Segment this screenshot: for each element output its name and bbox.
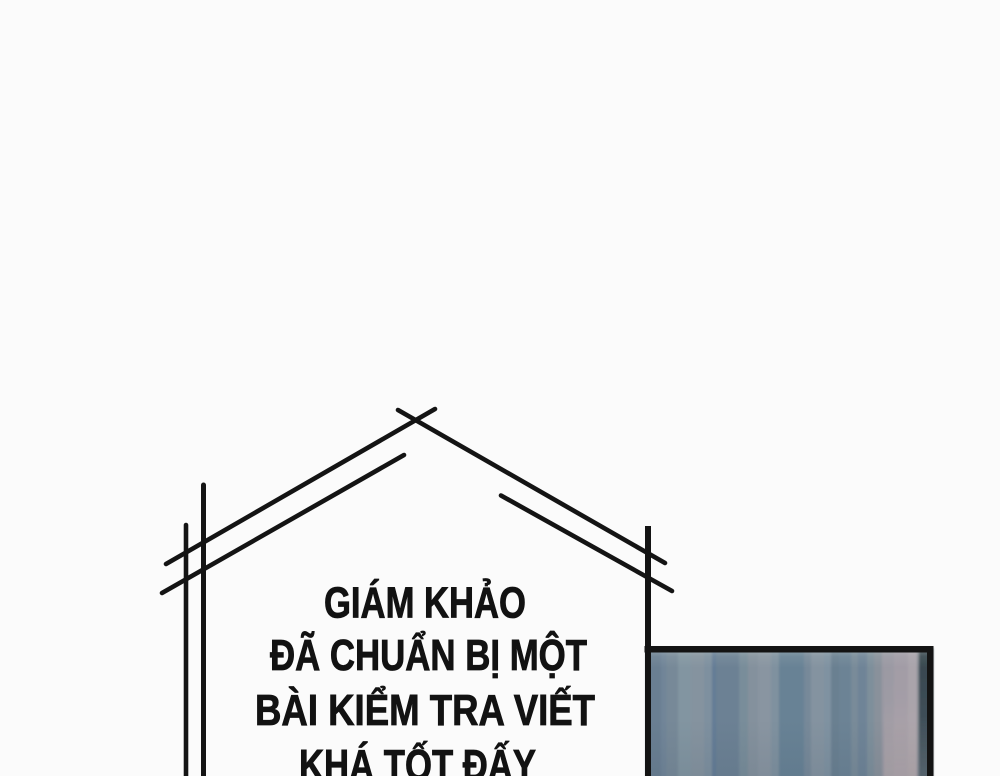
svg-text:BÀI KIỂM TRA VIẾT: BÀI KIỂM TRA VIẾT <box>255 684 595 735</box>
svg-text:KHÁ TỐT ĐẤY: KHÁ TỐT ĐẤY <box>299 739 536 776</box>
svg-text:ĐÃ CHUẨN BỊ MỘT: ĐÃ CHUẨN BỊ MỘT <box>270 629 587 680</box>
svg-text:GIÁM KHẢO: GIÁM KHẢO <box>324 578 526 628</box>
